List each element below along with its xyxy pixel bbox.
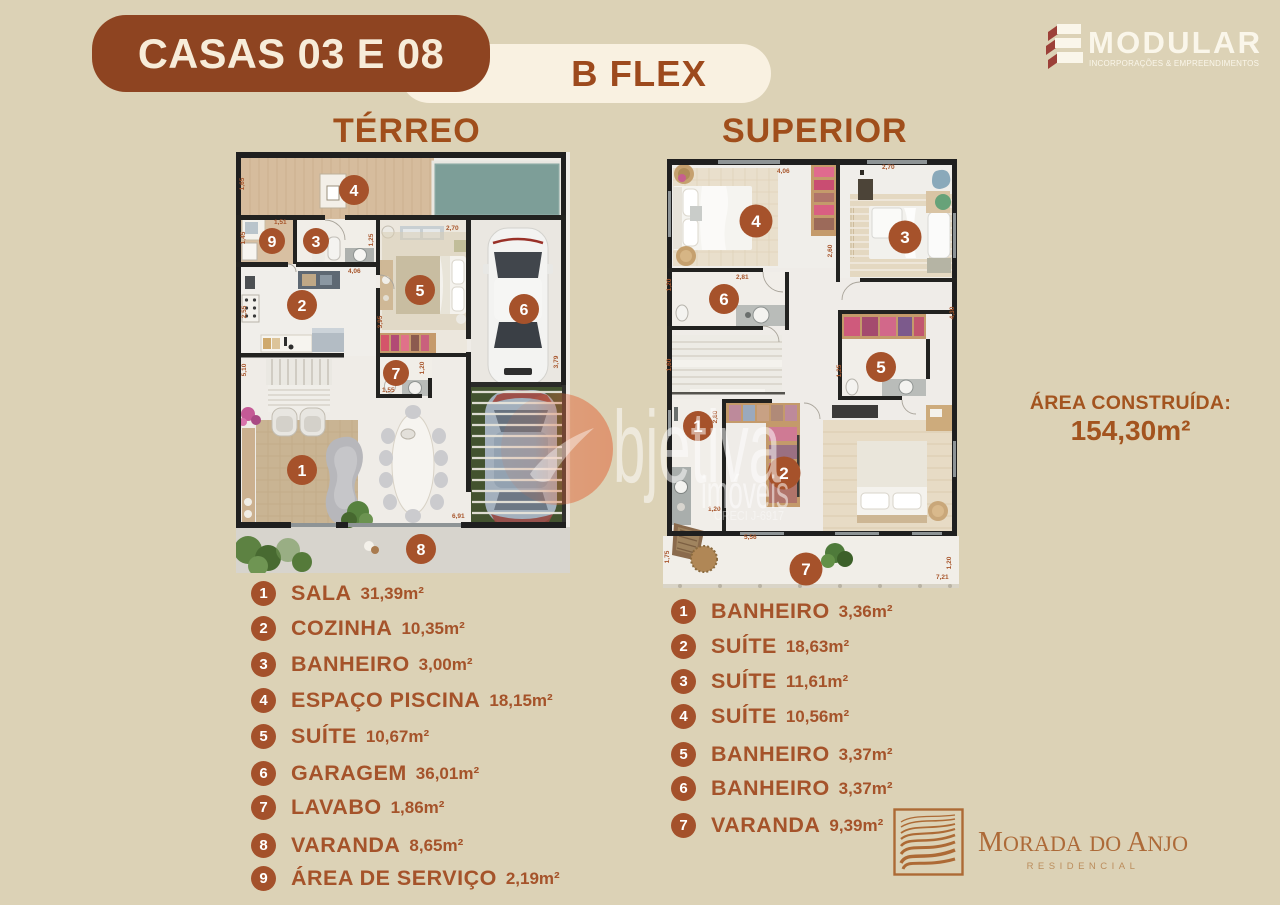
svg-text:MODULAR: MODULAR [1088,25,1260,60]
svg-text:4: 4 [751,212,761,231]
svg-text:1,20: 1,20 [419,361,426,374]
svg-text:4,30: 4,30 [949,306,956,319]
svg-text:5,10: 5,10 [241,363,248,376]
svg-text:4,06: 4,06 [777,168,790,175]
svg-text:6: 6 [719,290,728,309]
svg-text:1,55: 1,55 [382,387,395,394]
svg-text:2,60: 2,60 [827,244,834,257]
svg-text:4: 4 [350,183,359,200]
svg-text:1,20: 1,20 [666,278,673,291]
svg-text:7,21: 7,21 [936,574,949,581]
svg-text:CRECI J-6917: CRECI J-6917 [714,508,784,523]
svg-text:3,95: 3,95 [377,315,384,328]
svg-text:RESIDENCIAL: RESIDENCIAL [1027,861,1140,872]
svg-text:2,81: 2,81 [736,274,749,281]
svg-text:INCORPORAÇÕES & EMPREENDIMENTO: INCORPORAÇÕES & EMPREENDIMENTOS [1089,59,1259,68]
svg-text:5: 5 [416,283,425,300]
svg-text:7: 7 [801,560,810,579]
svg-text:7: 7 [392,366,401,383]
svg-text:1,65: 1,65 [239,177,246,190]
svg-text:1,75: 1,75 [664,550,671,563]
svg-text:3: 3 [900,228,909,247]
svg-text:1: 1 [298,463,307,480]
svg-text:1,25: 1,25 [368,233,375,246]
svg-text:2,55: 2,55 [241,305,248,318]
svg-text:3,79: 3,79 [553,355,560,368]
svg-text:2: 2 [298,298,307,315]
svg-text:2,70: 2,70 [882,164,895,171]
svg-text:4,06: 4,06 [348,268,361,275]
svg-text:3: 3 [312,234,321,251]
svg-text:MORADA DO ANJO: MORADA DO ANJO [978,827,1188,858]
svg-text:1,51: 1,51 [274,219,287,226]
svg-text:1,20: 1,20 [946,556,953,569]
svg-text:6: 6 [520,302,529,319]
svg-text:2,70: 2,70 [446,225,459,232]
svg-text:9: 9 [268,234,277,251]
svg-text:1,45: 1,45 [240,231,247,244]
svg-text:5: 5 [876,358,885,377]
svg-text:8: 8 [417,542,426,559]
